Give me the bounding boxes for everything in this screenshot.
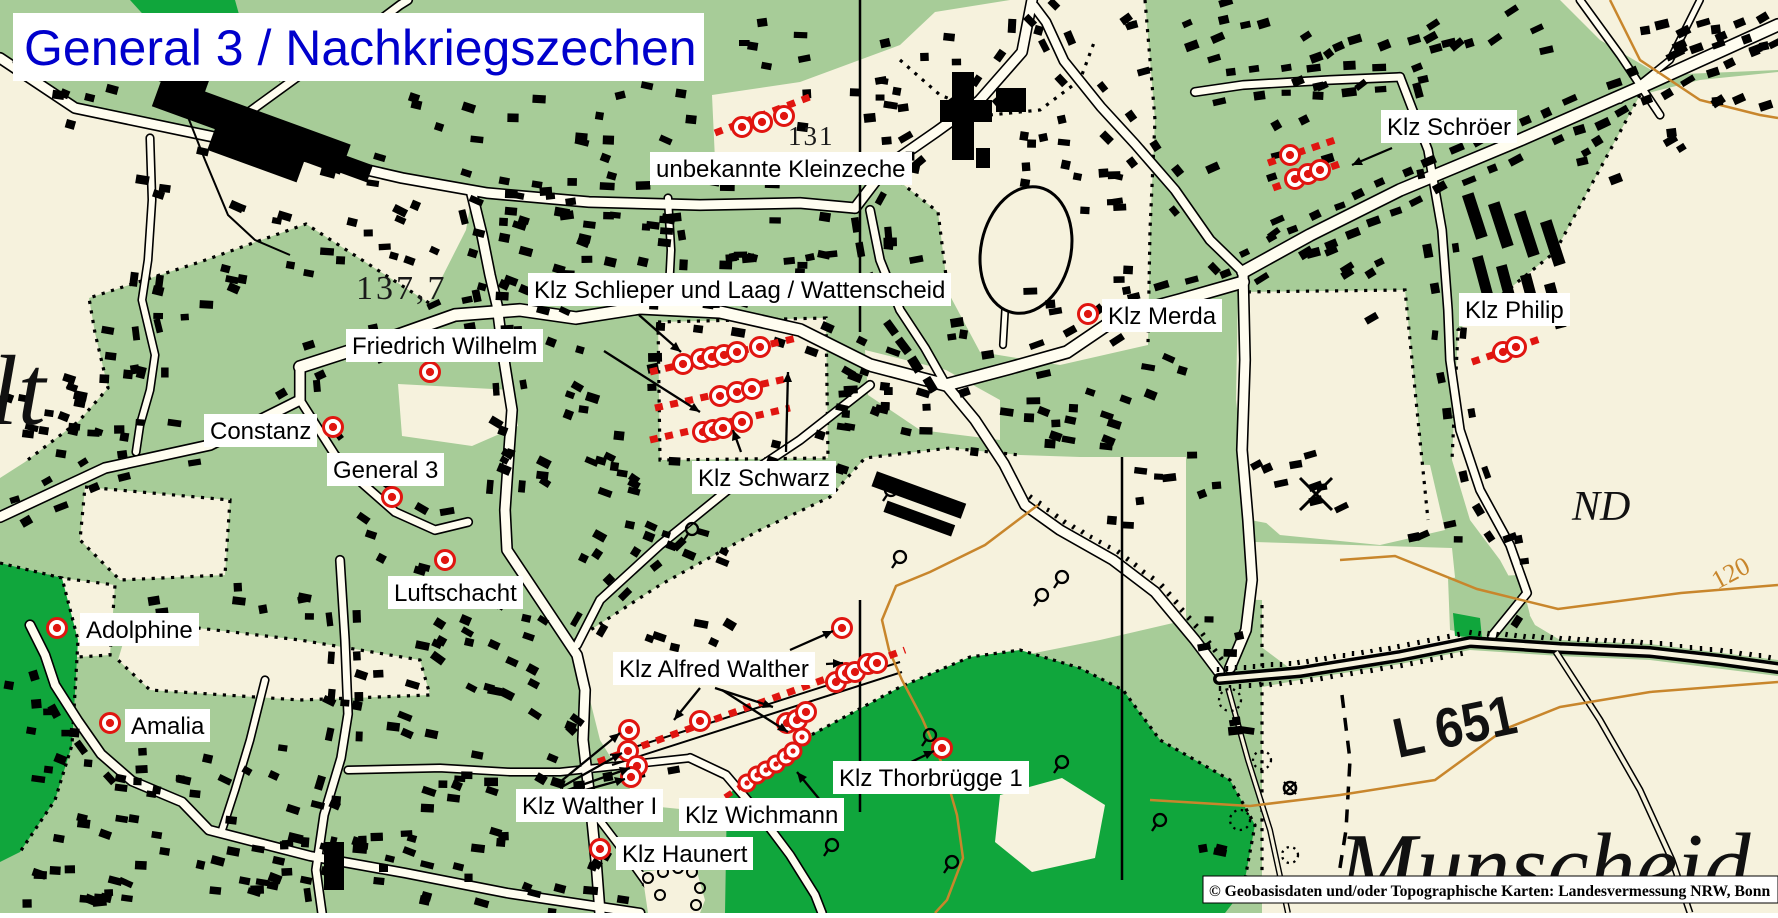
svg-text:unbekannte Kleinzeche: unbekannte Kleinzeche bbox=[656, 156, 906, 183]
svg-text:Luftschacht: Luftschacht bbox=[394, 580, 517, 607]
svg-text:Klz Schröer: Klz Schröer bbox=[1387, 114, 1511, 141]
svg-text:Klz Merda: Klz Merda bbox=[1108, 303, 1217, 330]
svg-text:Klz Haunert: Klz Haunert bbox=[622, 841, 748, 868]
svg-text:Klz Philip: Klz Philip bbox=[1465, 297, 1564, 324]
svg-text:137,7: 137,7 bbox=[356, 270, 448, 307]
svg-text:lt: lt bbox=[0, 335, 48, 446]
svg-text:Klz Schlieper und Laag / Watte: Klz Schlieper und Laag / Wattenscheid bbox=[534, 277, 945, 304]
svg-text:Klz Thorbrügge 1: Klz Thorbrügge 1 bbox=[839, 765, 1023, 792]
svg-text:131: 131 bbox=[788, 121, 835, 151]
svg-text:Friedrich Wilhelm: Friedrich Wilhelm bbox=[352, 333, 537, 360]
svg-text:Klz Walther I: Klz Walther I bbox=[522, 793, 657, 820]
svg-text:Constanz: Constanz bbox=[210, 418, 311, 445]
svg-text:General 3: General 3 bbox=[333, 457, 438, 484]
svg-text:Klz Wichmann: Klz Wichmann bbox=[685, 802, 838, 829]
svg-text:Klz Alfred Walther: Klz Alfred Walther bbox=[619, 656, 809, 683]
svg-text:© Geobasisdaten und/oder Topog: © Geobasisdaten und/oder Topographische … bbox=[1209, 883, 1770, 900]
svg-text:Adolphine: Adolphine bbox=[86, 617, 193, 644]
svg-text:General 3 / Nachkriegszechen: General 3 / Nachkriegszechen bbox=[24, 20, 697, 76]
svg-text:Amalia: Amalia bbox=[131, 713, 205, 740]
svg-text:ND: ND bbox=[1571, 484, 1630, 530]
svg-text:Klz Schwarz: Klz Schwarz bbox=[698, 465, 830, 492]
